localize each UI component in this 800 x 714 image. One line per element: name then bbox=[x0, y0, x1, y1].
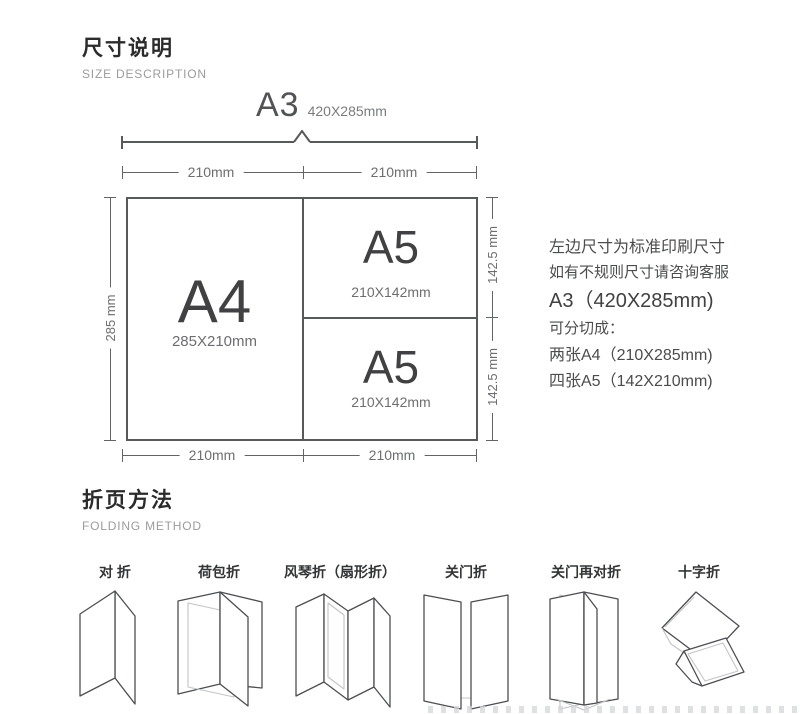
a3-title: A3420X285mm bbox=[256, 86, 387, 125]
note-line-6: 四张A5（142X210mm) bbox=[549, 367, 713, 391]
note-line-1: 左边尺寸为标准印刷尺寸 bbox=[549, 233, 725, 257]
a5-bottom-dims-label: 210X142mm bbox=[305, 394, 477, 410]
fold-item-half: 对 折 bbox=[60, 562, 170, 707]
a5-top-label: A5 bbox=[305, 221, 477, 273]
fold-item-gate: 关门折 bbox=[411, 562, 521, 711]
right-height-top-label: 142.5 mm bbox=[485, 219, 501, 291]
fold-label-gate-half: 关门再对折 bbox=[531, 562, 641, 582]
folding-section-subtitle: FOLDING METHOD bbox=[82, 519, 202, 533]
a3-extent-tick-left bbox=[121, 136, 123, 149]
folding-section-title: 折页方法 bbox=[82, 484, 202, 514]
top-dim-tick-right bbox=[476, 166, 477, 179]
right-dim-tick-mid bbox=[486, 317, 498, 318]
note-line-5: 两张A4（210X285mm) bbox=[549, 341, 713, 365]
top-dim-tick-mid bbox=[303, 166, 304, 179]
size-section-header: 尺寸说明 SIZE DESCRIPTION bbox=[82, 32, 207, 81]
accordion-fold-icon bbox=[288, 589, 393, 711]
half-fold-icon bbox=[73, 589, 158, 707]
right-dim-tick-top bbox=[486, 197, 498, 198]
fold-item-cross: 十字折 bbox=[644, 562, 754, 711]
size-section-title: 尺寸说明 bbox=[82, 32, 207, 62]
a3-label: A3 bbox=[256, 86, 300, 124]
a5-bottom-label: A5 bbox=[305, 341, 477, 393]
left-dim-tick-bottom bbox=[104, 440, 116, 441]
bottom-dim-tick-right bbox=[476, 449, 477, 462]
bottom-dim-tick-left bbox=[122, 449, 123, 462]
fold-label-cross: 十字折 bbox=[644, 562, 754, 582]
note-line-4: 可分切成： bbox=[549, 317, 624, 338]
fold-item-gate-half: 关门再对折 bbox=[531, 562, 641, 711]
top-dim-tick-left bbox=[122, 166, 123, 179]
sheet-vertical-divider bbox=[302, 197, 304, 441]
page: 尺寸说明 SIZE DESCRIPTION A3420X285mm 210mm … bbox=[0, 0, 800, 714]
fold-label-accordion: 风琴折（扇形折） bbox=[275, 562, 405, 582]
top-width-right-label: 210mm bbox=[362, 164, 427, 181]
a3-extent-peak-icon bbox=[293, 130, 311, 143]
right-height-bottom-label: 142.5 mm bbox=[485, 341, 501, 413]
gate-fold-icon bbox=[416, 589, 516, 711]
gate-then-half-fold-icon bbox=[544, 589, 629, 711]
size-section-subtitle: SIZE DESCRIPTION bbox=[82, 67, 207, 81]
top-width-left-label: 210mm bbox=[179, 164, 244, 181]
left-height-label: 285 mm bbox=[103, 288, 119, 349]
right-dim-tick-bottom bbox=[486, 440, 498, 441]
a5-top-dims-label: 210X142mm bbox=[305, 284, 477, 300]
cross-fold-icon bbox=[649, 589, 749, 711]
left-dim-tick-top bbox=[104, 197, 116, 198]
fold-item-accordion: 风琴折（扇形折） bbox=[275, 562, 405, 711]
a4-dims-label: 285X210mm bbox=[128, 333, 301, 350]
bottom-width-right-label: 210mm bbox=[360, 447, 425, 464]
bottom-dim-tick-mid bbox=[303, 449, 304, 462]
a4-label: A4 bbox=[128, 270, 301, 334]
bottom-width-left-label: 210mm bbox=[180, 447, 245, 464]
folding-section-header: 折页方法 FOLDING METHOD bbox=[82, 484, 202, 533]
sheet-horizontal-divider bbox=[304, 317, 478, 319]
a3-extent-tick-right bbox=[476, 136, 478, 149]
cropped-watermark bbox=[428, 706, 798, 713]
note-line-3: A3（420X285mm) bbox=[549, 284, 714, 313]
a3-extent-line-right bbox=[310, 141, 477, 143]
wrap-fold-icon bbox=[172, 589, 267, 709]
note-line-2: 如有不规则尺寸请咨询客服 bbox=[549, 261, 729, 282]
fold-item-wrap: 荷包折 bbox=[164, 562, 274, 709]
fold-label-wrap: 荷包折 bbox=[164, 562, 274, 582]
a3-dims-label: 420X285mm bbox=[308, 103, 387, 119]
fold-label-half: 对 折 bbox=[60, 562, 170, 582]
a3-extent-line-left bbox=[122, 141, 294, 143]
fold-label-gate: 关门折 bbox=[411, 562, 521, 582]
